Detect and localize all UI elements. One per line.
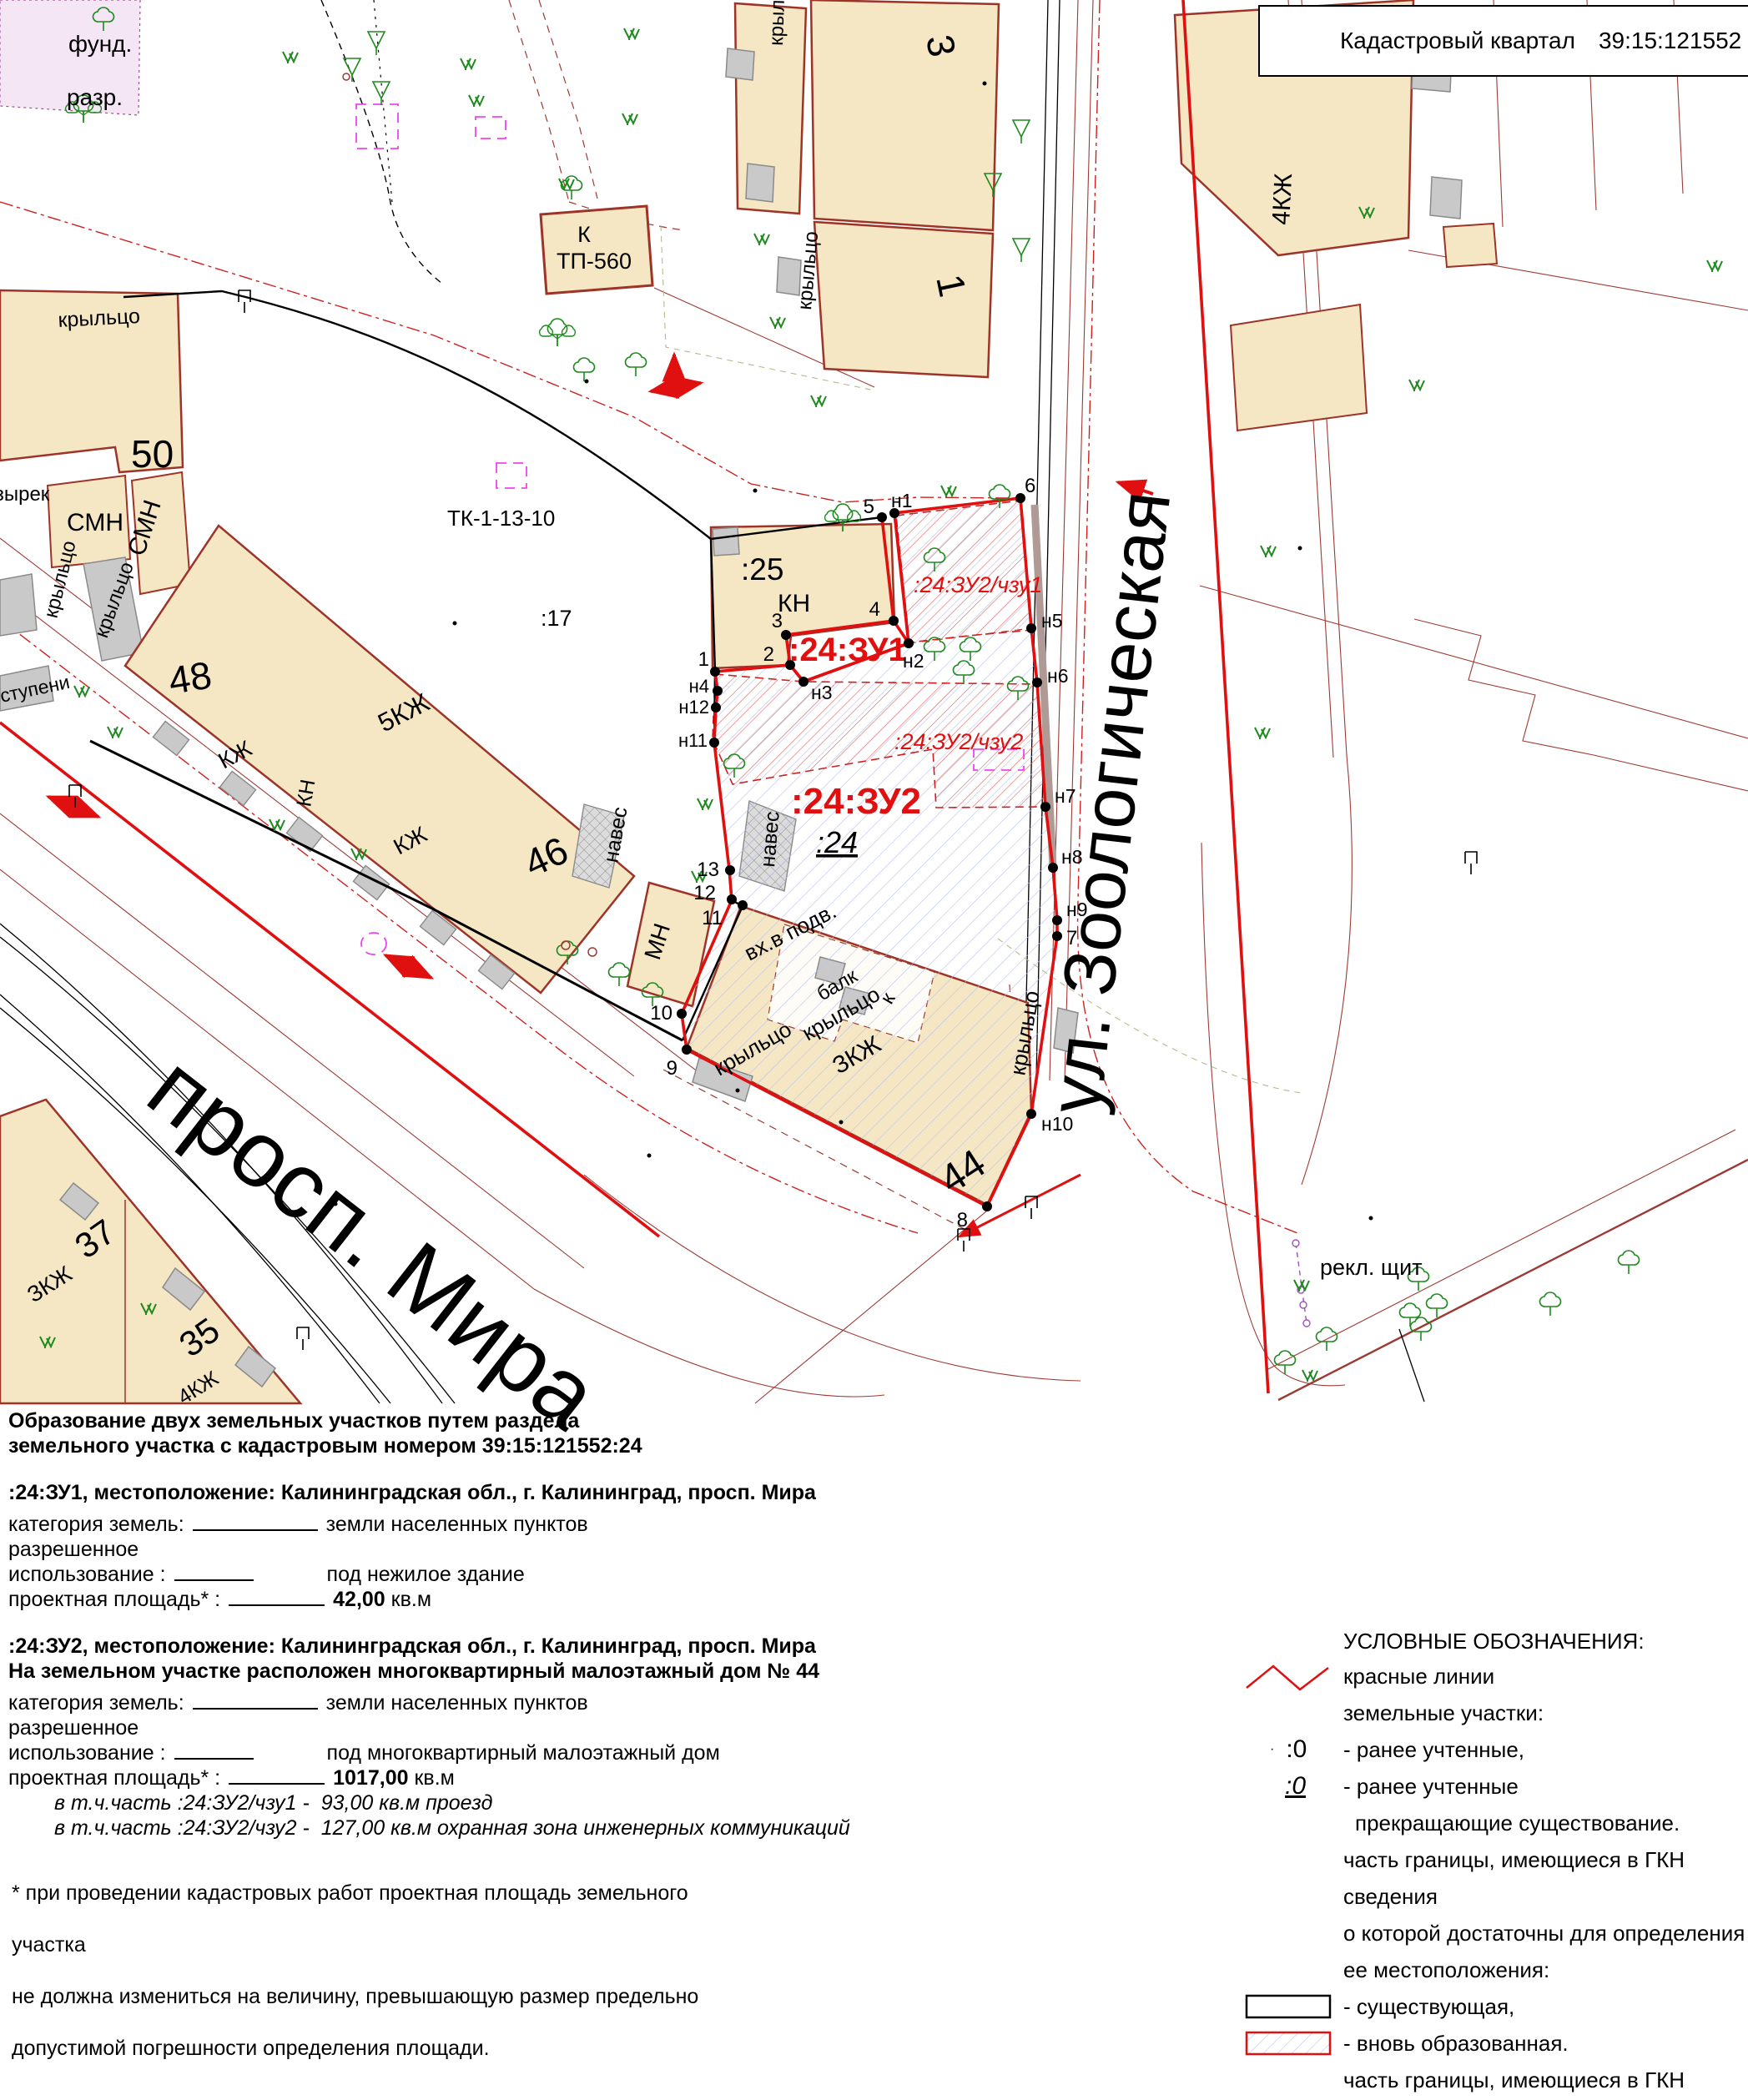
use-label: использование :: [8, 1741, 166, 1765]
sqm-unit: кв.м: [414, 1766, 454, 1790]
cone-tree-icon: [1013, 120, 1030, 144]
shrub-icon: [698, 798, 713, 810]
pt-13: 13: [697, 859, 719, 881]
legend-red-lines: красные линии: [1343, 1664, 1745, 1689]
zu1-use-value: под нежилое здание: [327, 1563, 525, 1586]
label-p24: :24: [816, 825, 858, 859]
legend-gkn-ok-2: о которой достаточны для определения: [1343, 1915, 1745, 1951]
pt-n7: н7: [1055, 785, 1076, 807]
shrub-icon: [624, 28, 639, 40]
zu2-area-value: 1017,00: [333, 1766, 408, 1790]
label-kryltso-top-a: крыльцо: [765, 0, 790, 46]
footnote-line-2: не должна измениться на величину, превыш…: [12, 1971, 763, 2022]
label-house50: 50: [131, 432, 174, 476]
tree-cluster-icon: [540, 319, 576, 346]
zu2-subtitle: На земельном участке расположен многоква…: [8, 1659, 809, 1684]
zu2-area-row: проектная площадь* :1017,00 кв.м: [8, 1765, 809, 1790]
label-kn-rot: КН: [292, 778, 320, 808]
chzu1-hatch: [896, 501, 1032, 642]
pt-2: 2: [763, 643, 774, 666]
zu1-use-row: использование :под нежилое здание: [8, 1562, 809, 1587]
cone-tree-icon: [344, 58, 360, 82]
pt-9: 9: [667, 1057, 678, 1080]
label-kryltso-topleft: крыльцо: [58, 305, 141, 332]
pt-6: 6: [1025, 475, 1035, 497]
description-title-2: земельного участка с кадастровым номером…: [8, 1433, 809, 1458]
legend: УСЛОВНЫЕ ОБОЗНАЧЕНИЯ: красные линии земе…: [1245, 1629, 1745, 2100]
pt-n5: н5: [1041, 610, 1063, 632]
cadastral-quarter-value: 39:15:121552: [1599, 28, 1741, 54]
zu1-category-row: категория земель:земли населенных пункто…: [8, 1512, 809, 1537]
cone-tree-icon: [368, 32, 385, 55]
pt-4: 4: [869, 598, 880, 621]
legend-title: УСЛОВНЫЕ ОБОЗНАЧЕНИЯ:: [1343, 1629, 1745, 1654]
description-block: Образование двух земельных участков путе…: [8, 1408, 809, 1841]
tree-icon: [1410, 1317, 1431, 1341]
label-tp-k: К: [577, 222, 591, 247]
footnote-line-3: допустимой погрешности определения площа…: [12, 2022, 763, 2074]
shrub-icon: [754, 234, 769, 245]
tree-icon: [1618, 1251, 1639, 1274]
label-tp560: ТП-560: [557, 249, 632, 274]
pt-n1: н1: [891, 490, 913, 511]
zu2-perm-row: разрешенное: [8, 1715, 809, 1740]
zu1-area-row: проектная площадь* :42,00 кв.м: [8, 1587, 809, 1612]
label-p17: :17: [541, 606, 572, 631]
area-label: проектная площадь* :: [8, 1766, 220, 1790]
pt-n4: н4: [689, 676, 709, 697]
legend-new: - вновь образованная.: [1343, 2031, 1745, 2056]
blank-line: [193, 1514, 318, 1531]
shrub-icon: [1302, 1370, 1317, 1382]
legend-prev2b: прекращающие существование.: [1343, 1805, 1745, 1841]
pt-n2: н2: [903, 650, 924, 672]
shrub-icon: [1409, 380, 1424, 391]
label-tk: ТК-1-13-10: [447, 506, 555, 531]
cadastral-plan-page: фунд. разр. крыльцо крыльцо крыльцо 3 1 …: [0, 0, 1748, 2100]
part1-value: 93,00 кв.м проезд: [321, 1791, 493, 1815]
label-zu1: :24:ЗУ1: [788, 632, 907, 668]
zu1-area-value: 42,00: [333, 1588, 385, 1611]
legend-existing: - существующая,: [1343, 1994, 1745, 2019]
pt-n11: н11: [678, 730, 708, 751]
pt-n9: н9: [1066, 899, 1088, 920]
tree-icon: [608, 963, 629, 986]
pt-n3: н3: [811, 682, 833, 703]
red-zigzag-icon: [1245, 1658, 1343, 1695]
shrub-icon: [770, 317, 785, 329]
label-zu2: :24:ЗУ2: [791, 781, 921, 822]
label-smn-1: СМН: [67, 509, 123, 536]
shrub-icon: [559, 179, 574, 190]
pt-1: 1: [698, 648, 709, 671]
shrub-icon: [283, 52, 298, 63]
zu1-title: :24:ЗУ1, местоположение: Калининградская…: [8, 1480, 809, 1505]
category-value: земли населенных пунктов: [326, 1691, 588, 1715]
pt-10: 10: [650, 1002, 673, 1025]
category-label: категория земель:: [8, 1513, 184, 1536]
blank-line: [174, 1743, 254, 1760]
pt-7: 7: [1066, 927, 1077, 949]
part2-value: 127,00 кв.м охранная зона инженерных ком…: [321, 1816, 850, 1840]
shrub-icon: [108, 727, 123, 738]
prev-parcel-icon: ·:0: [1245, 1735, 1343, 1764]
legend-prev2: - ранее учтенные: [1343, 1774, 1745, 1799]
description-title-1: Образование двух земельных участков путе…: [8, 1408, 809, 1433]
part1-label: в т.ч.часть :24:ЗУ2/чзу1 -: [54, 1791, 310, 1815]
prev-parcel-symbol: :0: [1286, 1735, 1307, 1764]
footnote-block: * при проведении кадастровых работ проек…: [12, 1867, 763, 2074]
zu2-part1-row: в т.ч.часть :24:ЗУ2/чзу1 - 93,00 кв.м пр…: [8, 1790, 809, 1815]
zu2-use-value: под многоквартирный малоэтажный дом: [327, 1741, 720, 1765]
legend-prev: - ранее учтенные,: [1343, 1737, 1745, 1762]
pt-8: 8: [957, 1209, 968, 1231]
road-edge-ticked: [1278, 1160, 1748, 1400]
existing-border-swatch: [1245, 1992, 1343, 2021]
blank-line: [229, 1589, 325, 1606]
shrub-icon: [469, 95, 484, 107]
cadastral-quarter-box: Кадастровый квартал 39:15:121552: [1258, 5, 1748, 77]
cone-tree-icon: [1013, 239, 1030, 262]
label-kryltso-top-b: крыльцо: [793, 230, 823, 310]
pt-n8: н8: [1061, 846, 1083, 868]
zu2-part2-row: в т.ч.часть :24:ЗУ2/чзу2 - 127,00 кв.м о…: [8, 1815, 809, 1841]
footpath-dashed: [321, 0, 442, 284]
shrub-icon: [1255, 728, 1270, 739]
legend-gkn-no-1: часть границы, имеющиеся в ГКН сведения: [1343, 2062, 1745, 2100]
label-p25: :25: [741, 552, 783, 587]
zu2-category-row: категория земель:земли населенных пункто…: [8, 1690, 809, 1715]
pt-n10: н10: [1041, 1113, 1073, 1135]
tree-icon: [1274, 1351, 1295, 1374]
blank-line: [193, 1693, 318, 1710]
sqm-unit: кв.м: [391, 1588, 431, 1611]
shrub-icon: [74, 686, 89, 697]
tree-icon: [625, 353, 646, 376]
legend-gkn-ok-3: ее местоположения:: [1343, 1951, 1745, 1988]
new-border-swatch: [1245, 2029, 1343, 2057]
pt-3: 3: [772, 610, 783, 632]
blank-line: [229, 1768, 325, 1785]
label-naves-b: навес: [756, 810, 784, 868]
tree-icon: [573, 358, 594, 381]
zu2-use-row: использование :под многоквартирный малоэ…: [8, 1740, 809, 1765]
use-label: использование :: [8, 1563, 166, 1586]
shrub-icon: [622, 113, 637, 125]
zu2-title: :24:ЗУ2, местоположение: Калининградская…: [8, 1634, 809, 1659]
pt-5: 5: [864, 496, 874, 518]
label-rekl: рекл. щит: [1320, 1255, 1423, 1280]
shrub-icon: [941, 486, 956, 497]
legend-gkn-ok-1: часть границы, имеющиеся в ГКН сведения: [1343, 1841, 1745, 1915]
cadastral-quarter-label: Кадастровый квартал: [1340, 28, 1575, 54]
prev-ceasing-symbol: :0: [1285, 1772, 1306, 1800]
label-chzu2: :24:ЗУ2/чзу2: [894, 729, 1023, 754]
label-razr: разр.: [67, 84, 123, 110]
tree-icon: [1426, 1294, 1447, 1317]
shrub-icon: [811, 395, 826, 407]
footnote-line-1: * при проведении кадастровых работ проек…: [12, 1867, 763, 1971]
tree-icon: [1399, 1303, 1420, 1327]
pt-n12: н12: [678, 697, 709, 718]
shrub-icon: [1707, 260, 1722, 272]
label-fund: фунд.: [68, 31, 132, 57]
prev-ceasing-icon: :0: [1245, 1772, 1343, 1800]
legend-parcels: земельные участки:: [1343, 1695, 1745, 1731]
pt-11: 11: [702, 907, 723, 929]
zu1-perm-row: разрешенное: [8, 1537, 809, 1562]
pt-n6: н6: [1047, 665, 1069, 687]
category-value: земли населенных пунктов: [326, 1513, 588, 1536]
tree-icon: [1539, 1292, 1560, 1316]
area-label: проектная площадь* :: [8, 1588, 220, 1611]
shrub-icon: [461, 58, 476, 70]
pt-12: 12: [693, 882, 716, 904]
label-4kzh: 4КЖ: [1267, 173, 1297, 226]
blank-line: [174, 1564, 254, 1581]
category-label: категория земель:: [8, 1691, 184, 1715]
shrub-icon: [1261, 546, 1276, 557]
label-kryltso-left-a: крыльцо: [40, 538, 81, 620]
label-house48: 48: [165, 653, 214, 703]
label-chzu1: :24:ЗУ2/чзу1: [914, 572, 1042, 597]
part2-label: в т.ч.часть :24:ЗУ2/чзу2 -: [54, 1816, 310, 1840]
treeline-dotted: [374, 0, 392, 203]
label-kozyrek: козырек: [0, 483, 50, 506]
